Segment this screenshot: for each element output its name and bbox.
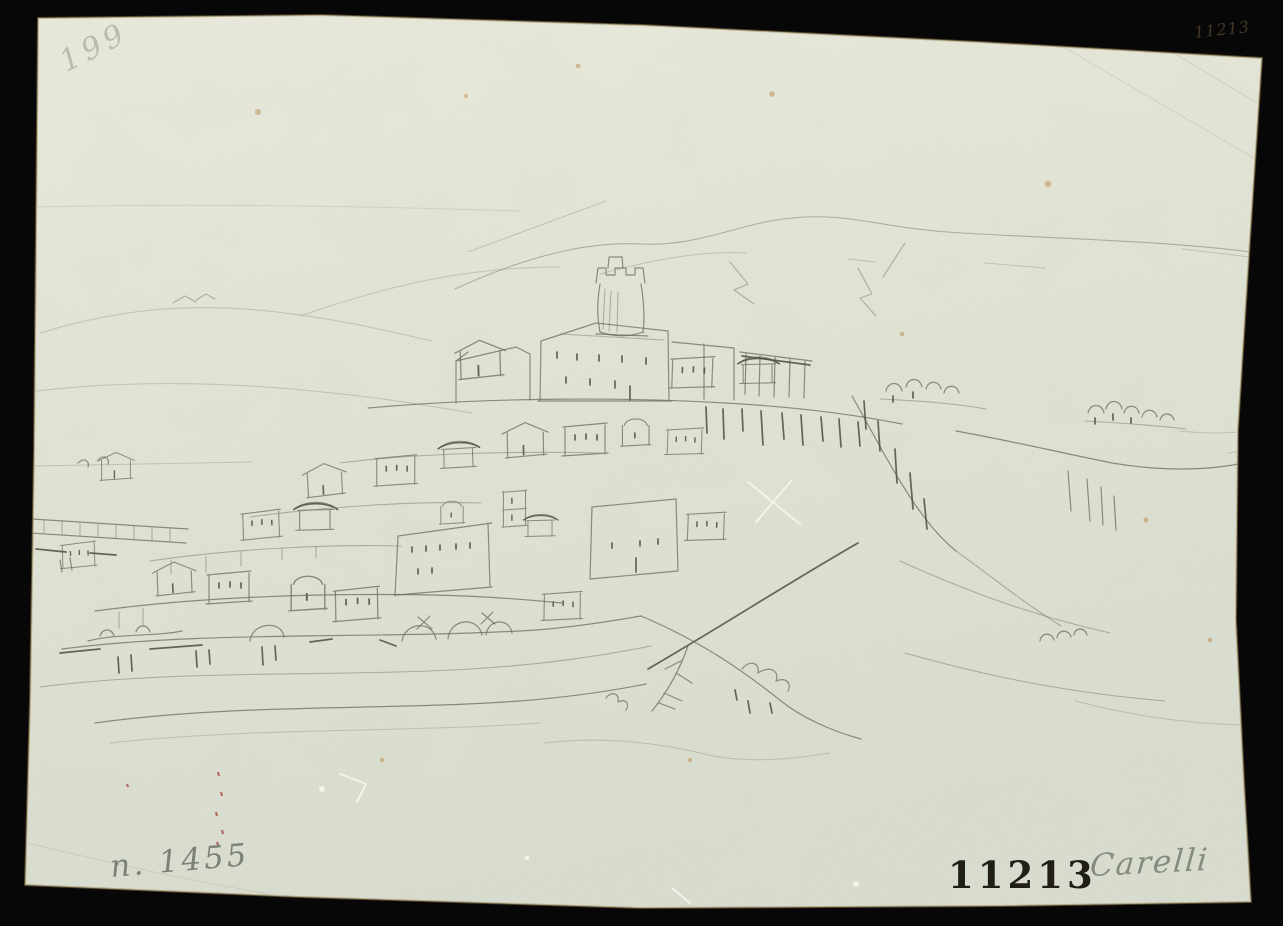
photograph-of-drawing: .pf{fill:none;stroke:#8d9080;stroke-opac… xyxy=(0,0,1283,926)
drawing-sheet xyxy=(20,10,1282,915)
artwork-photo: .pf{fill:none;stroke:#8d9080;stroke-opac… xyxy=(0,0,1283,926)
inventory-number-stamp: 11213 xyxy=(948,853,1097,897)
artist-signature-pencil: Carelli xyxy=(1088,842,1210,884)
